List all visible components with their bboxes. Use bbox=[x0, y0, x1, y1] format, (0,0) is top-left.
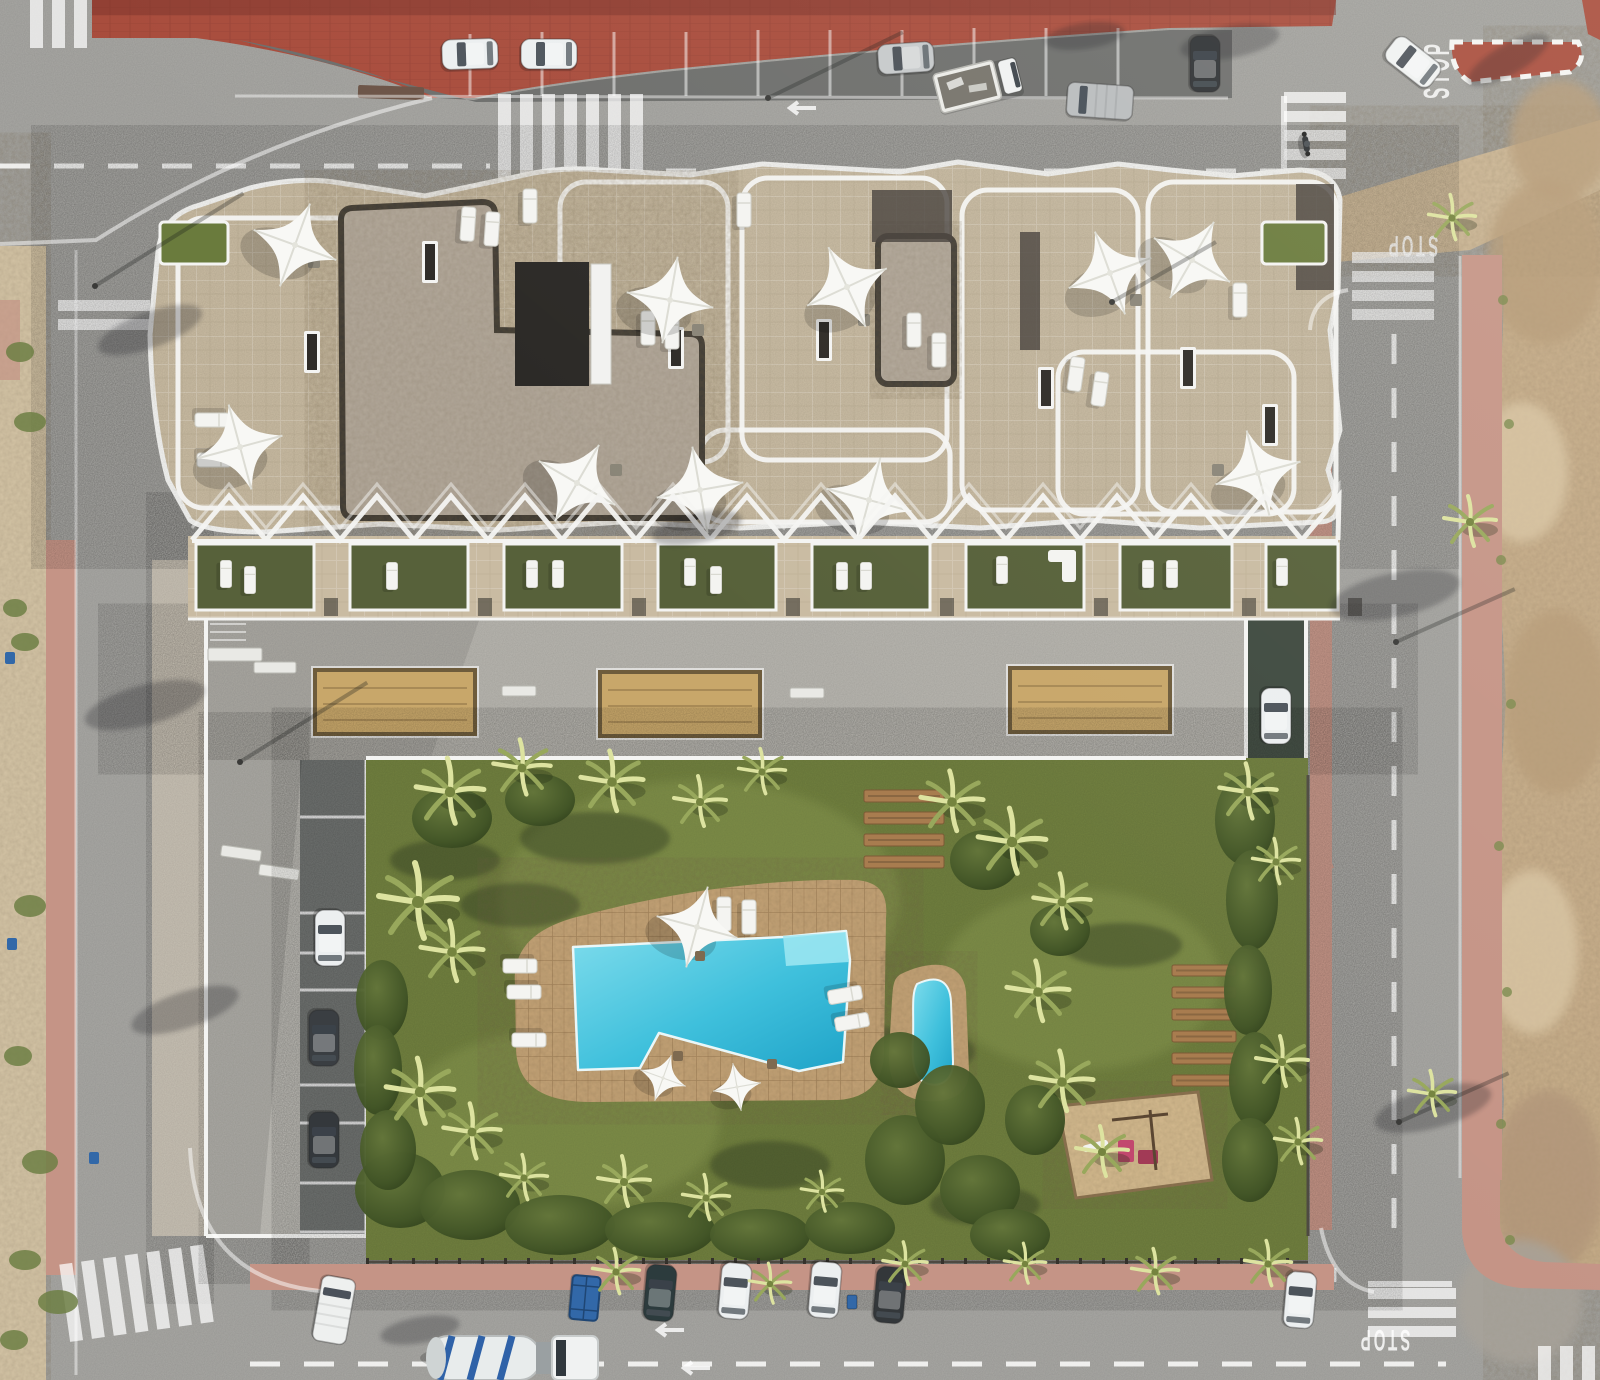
aerial-render-canvas: STOP STOP STOP bbox=[0, 0, 1600, 1380]
scene-svg: STOP STOP STOP bbox=[0, 0, 1600, 1380]
sunlight-overlay bbox=[0, 0, 1600, 1380]
